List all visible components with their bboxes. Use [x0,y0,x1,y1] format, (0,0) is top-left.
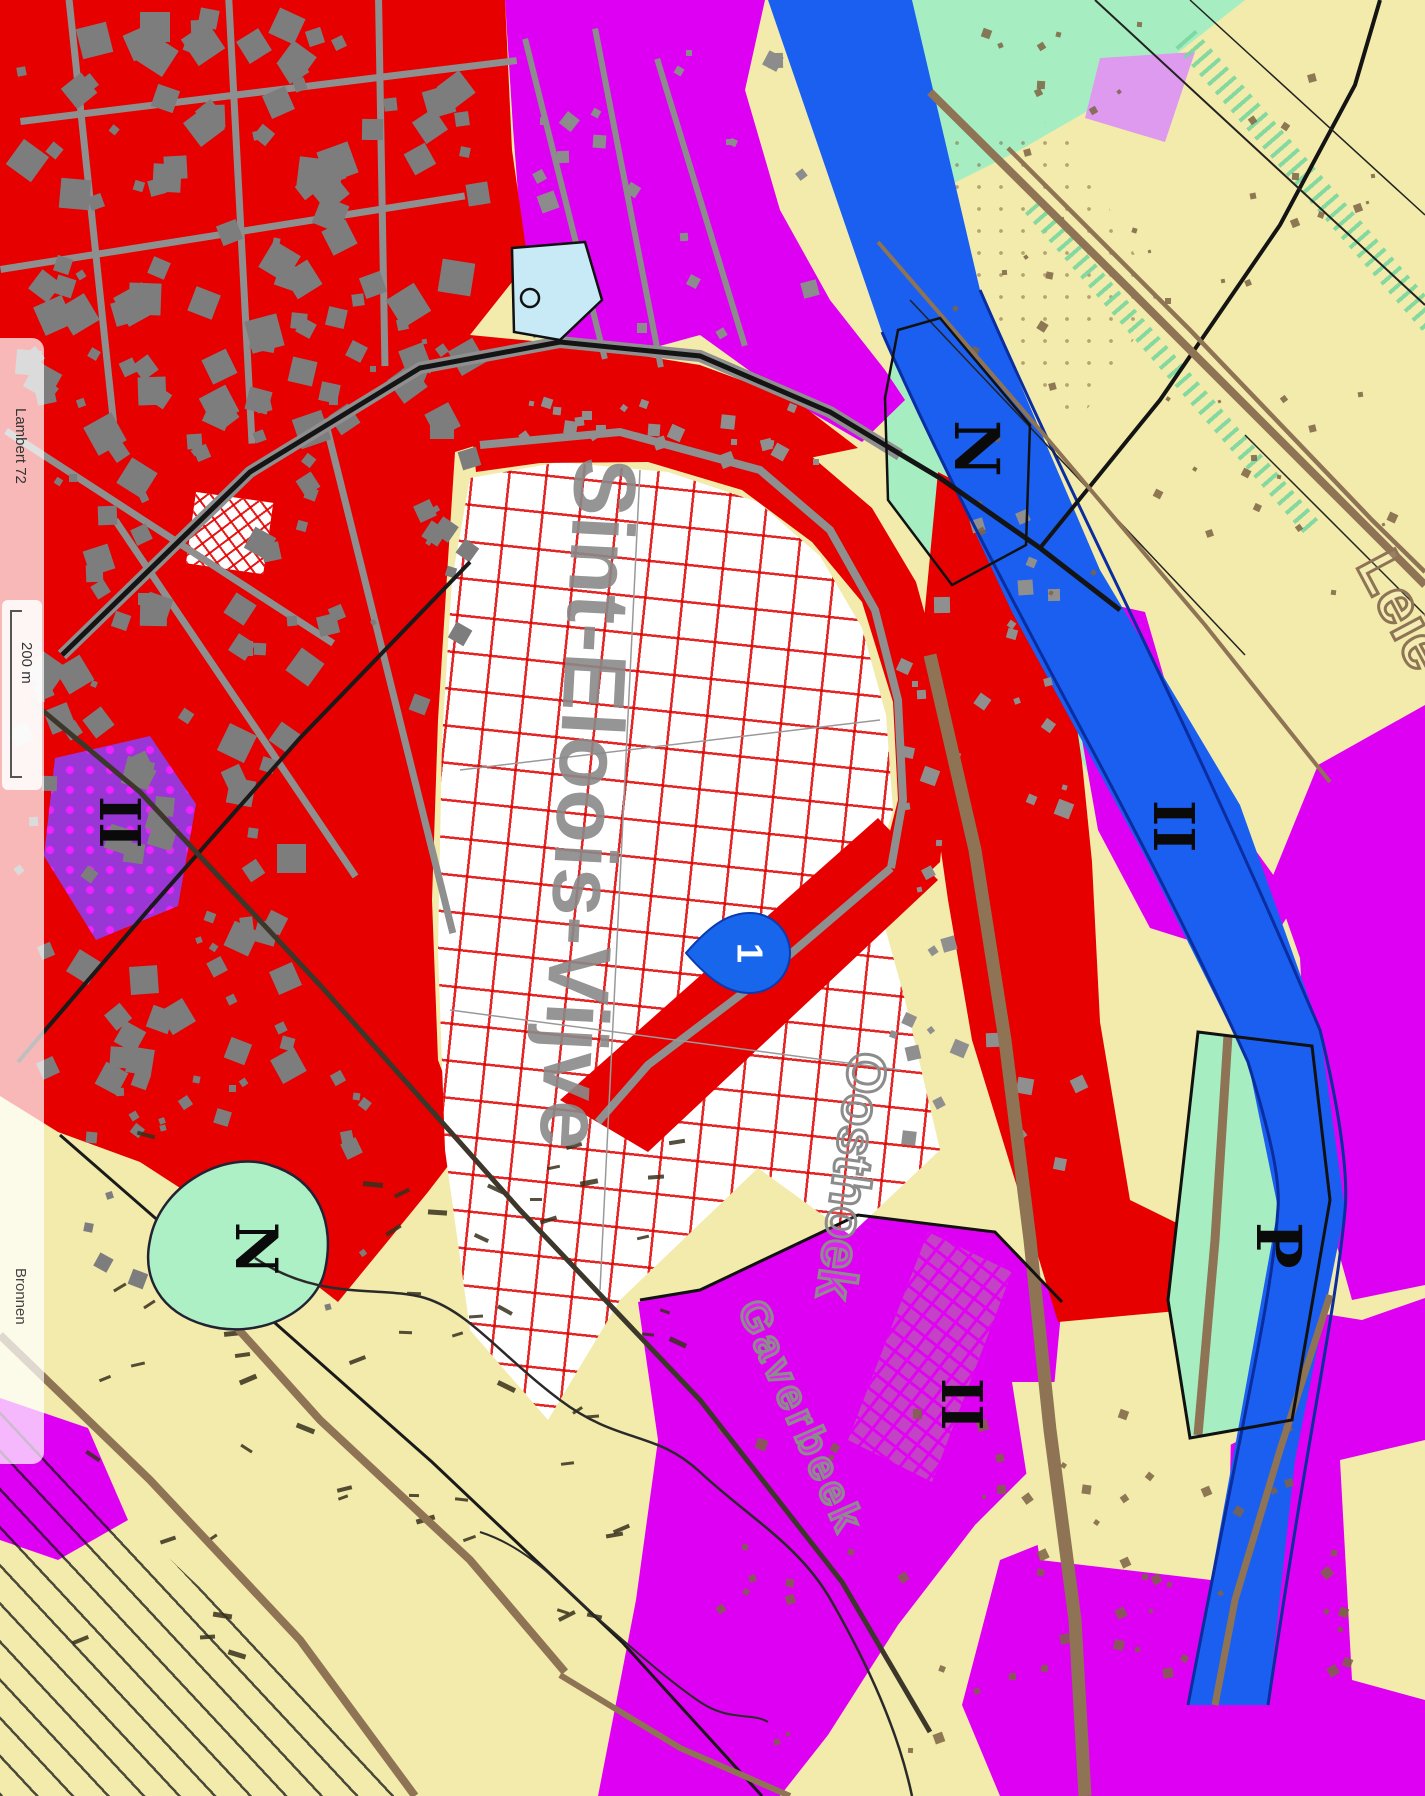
zone-letter-p-southeast: P [1242,1222,1315,1269]
scale-bar-line [10,610,12,778]
location-marker-pin[interactable]: 1 [678,903,798,1007]
viewer-footer-bar: Lambert 72 200 m Bronnen [0,338,44,1464]
map-viewer-screen: Sint-Eloois-Vijve Oosthoek Gaverbeek Lei… [0,0,1425,1796]
zone-letter-n-southwest: N [222,1222,290,1275]
zone-letter-ii-south: II [928,1378,994,1430]
marker-number: 1 [730,943,771,963]
scale-bar: 200 m [2,600,42,790]
zone-letter-n-north: N [940,420,1013,477]
map-canvas[interactable]: Sint-Eloois-Vijve Oosthoek Gaverbeek Lei… [0,0,1425,1796]
sources-link[interactable]: Bronnen [12,1268,29,1325]
zone-letter-ii-east: II [1140,800,1206,852]
roads-layer [0,0,1425,1796]
zone-letter-ii-west: II [86,796,152,848]
scale-label: 200 m [18,642,35,684]
projection-label: Lambert 72 [12,408,29,484]
